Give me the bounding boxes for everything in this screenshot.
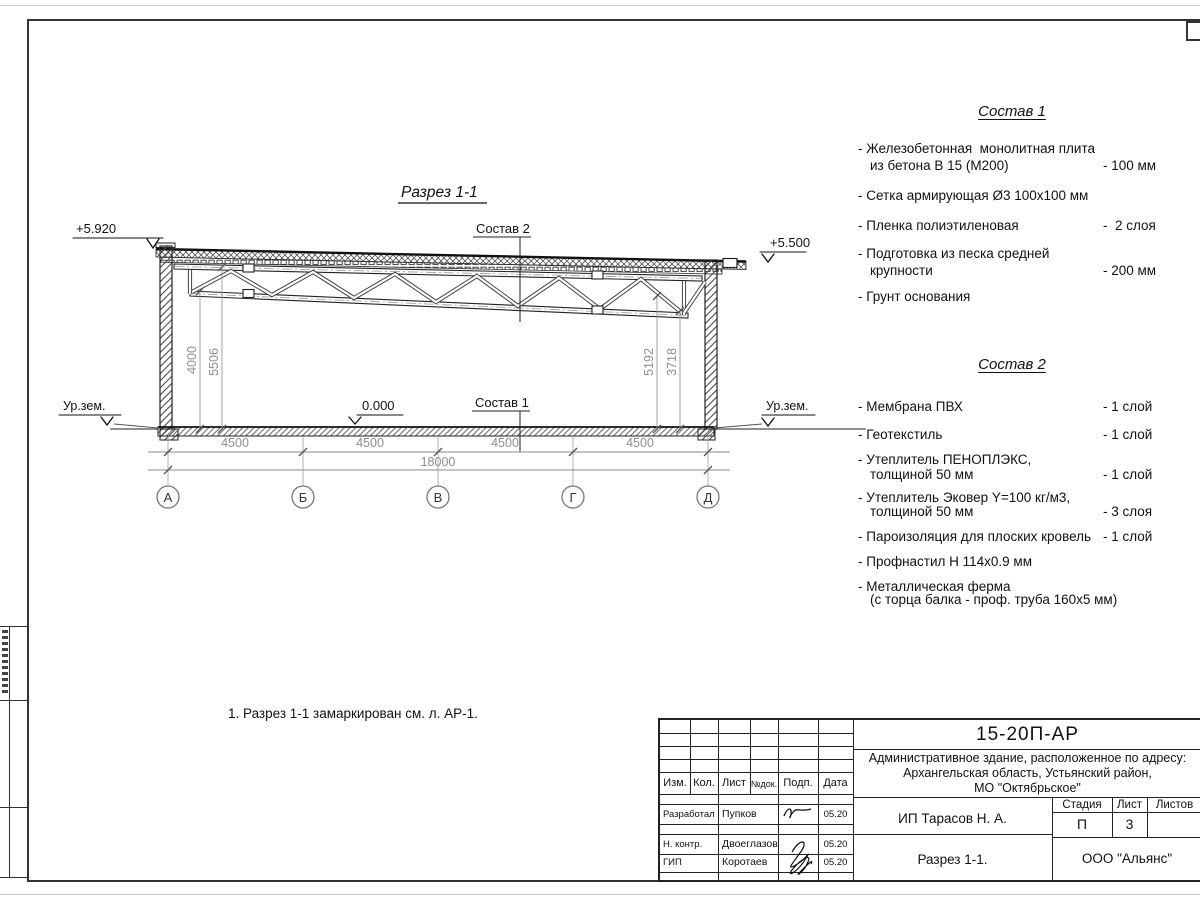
tb-role-2: Н. контр. xyxy=(663,839,702,850)
tb-stage-label: Стадия xyxy=(1052,799,1112,811)
tb-sheet-label: Лист xyxy=(1112,799,1147,811)
dim-span-3: 4500 xyxy=(491,436,519,450)
dimension-ticks xyxy=(196,263,684,433)
leader-sostav2-label: Состав 2 xyxy=(476,221,530,236)
list-item: крупности xyxy=(870,263,933,278)
signature-scribbles xyxy=(778,800,820,882)
list-item: - Геотекстиль xyxy=(858,427,942,442)
foundation-left xyxy=(160,429,178,440)
list-item: - Пленка полиэтиленовая xyxy=(858,218,1019,233)
elevation-top-right: +5.500 xyxy=(770,235,810,250)
list-item: - Утеплитель ПЕНОПЛЭКС, xyxy=(858,452,1031,467)
list-item: - Профнастил Н 114х0.9 мм xyxy=(858,554,1032,569)
axis-bubbles: А Б В Г Д xyxy=(157,486,719,508)
list-item-value: - 1 слой xyxy=(1103,467,1152,482)
tb-name-1: Пупков xyxy=(722,808,757,820)
list-item-value: - 1 слой xyxy=(1103,427,1152,442)
tb-address-3: МО "Октябрьское" xyxy=(853,781,1200,795)
dim-height-right-2: 3718 xyxy=(665,348,679,376)
list-item: (с торца балка - проф. труба 160х5 мм) xyxy=(870,592,1117,607)
elevation-top-left: +5.920 xyxy=(76,221,116,236)
tb-role-3: ГИП xyxy=(663,857,682,868)
list-item-value: - 2 слоя xyxy=(1103,218,1156,233)
tb-role-1: Разработал xyxy=(663,809,715,820)
tb-sheets-label: Листов xyxy=(1147,799,1200,811)
list-item: толщиной 50 мм xyxy=(870,504,973,519)
list-item: - Подготовка из песка средней xyxy=(858,246,1049,261)
sostav2-list: Состав 2 - Мембрана ПВХ - 1 слой - Геоте… xyxy=(858,355,1166,615)
list-item-value: - 3 слоя xyxy=(1103,504,1152,519)
tb-name-2: Двоеглазов xyxy=(722,838,778,850)
list-item-value: - 1 слой xyxy=(1103,399,1152,414)
section-title-text: Разрез 1-1 xyxy=(401,184,478,201)
ground-level-left: Ур.зем. xyxy=(63,399,105,413)
tb-address-1: Административное здание, расположенное п… xyxy=(853,751,1200,765)
leader-sostav1-label: Состав 1 xyxy=(475,395,529,410)
dim-span-2: 4500 xyxy=(356,436,384,450)
list-item-value: - 1 слой xyxy=(1103,529,1152,544)
tb-col-podp: Подп. xyxy=(778,777,818,789)
dim-height-left-2: 5506 xyxy=(207,348,221,376)
tb-company: ООО "Альянс" xyxy=(1052,851,1200,866)
title-block: Изм. Кол. Лист №док. Подп. Дата Разработ… xyxy=(658,718,1200,882)
drawing-sheet: { "page": { "section_title": "Разрез 1-1… xyxy=(0,0,1200,900)
elevation-zero: 0.000 xyxy=(362,398,395,413)
axis-label-g: Г xyxy=(569,490,576,505)
tb-doc-number: 15-20П-АР xyxy=(853,724,1200,746)
tb-date-2: 05.20 xyxy=(818,839,853,850)
list-item: толщиной 50 мм xyxy=(870,467,973,482)
sostav1-title: Состав 1 xyxy=(858,103,1166,120)
tb-date-1: 05.20 xyxy=(818,809,853,820)
axis-label-d: Д xyxy=(704,490,713,505)
list-item-value: - 100 мм xyxy=(1103,158,1156,173)
tb-col-data: Дата xyxy=(818,777,853,789)
axis-label-b: Б xyxy=(299,490,308,505)
dim-height-left-1: 4000 xyxy=(185,346,199,374)
list-item: - Грунт основания xyxy=(858,289,970,304)
list-item: - Пароизоляция для плоских кровель xyxy=(858,529,1091,544)
tb-address-2: Архангельская область, Устьянский район, xyxy=(853,766,1200,780)
tb-client: ИП Тарасов Н. А. xyxy=(853,811,1052,826)
axis-label-v: В xyxy=(434,490,443,505)
list-item: - Мембрана ПВХ xyxy=(858,399,963,414)
tb-col-izm: Изм. xyxy=(660,777,690,789)
section-title: Разрез 1-1 xyxy=(398,184,487,203)
wall-right xyxy=(705,260,717,429)
list-item: - Утеплитель Эковер Y=100 кг/м3, xyxy=(858,490,1070,505)
ground-level-right: Ур.зем. xyxy=(766,399,808,413)
sostav1-list: Состав 1 - Железобетонная монолитная пли… xyxy=(858,100,1166,310)
tb-stage-value: П xyxy=(1052,816,1112,832)
list-item: из бетона В 15 (М200) xyxy=(870,158,1009,173)
dim-span-1: 4500 xyxy=(221,436,249,450)
axis-label-a: А xyxy=(164,490,173,505)
sheet-note: 1. Разрез 1-1 замаркирован см. л. АР-1. xyxy=(228,706,478,721)
dim-height-right-1: 5192 xyxy=(642,348,656,376)
list-item: - Железобетонная монолитная плита xyxy=(858,141,1095,156)
list-item-value: - 200 мм xyxy=(1103,263,1156,278)
sostav2-title: Состав 2 xyxy=(858,356,1166,373)
dim-total: 18000 xyxy=(421,455,456,469)
dim-span-4: 4500 xyxy=(626,436,654,450)
tb-sheet-title: Разрез 1-1. xyxy=(853,852,1052,867)
foundation-right xyxy=(698,429,715,440)
horizontal-dimensions: 4500 4500 4500 4500 18000 xyxy=(148,436,730,486)
wall-left xyxy=(160,246,172,429)
tb-col-kol: Кол. xyxy=(690,777,718,789)
roof-eave-cap xyxy=(723,259,737,268)
tb-name-3: Коротаев xyxy=(722,856,767,868)
tb-col-list: Лист xyxy=(718,777,750,789)
tb-col-ndok: №док. xyxy=(750,779,778,789)
tb-sheet-value: 3 xyxy=(1112,816,1147,832)
tb-date-3: 05.20 xyxy=(818,857,853,868)
list-item: - Сетка армирующая Ø3 100х100 мм xyxy=(858,188,1088,203)
